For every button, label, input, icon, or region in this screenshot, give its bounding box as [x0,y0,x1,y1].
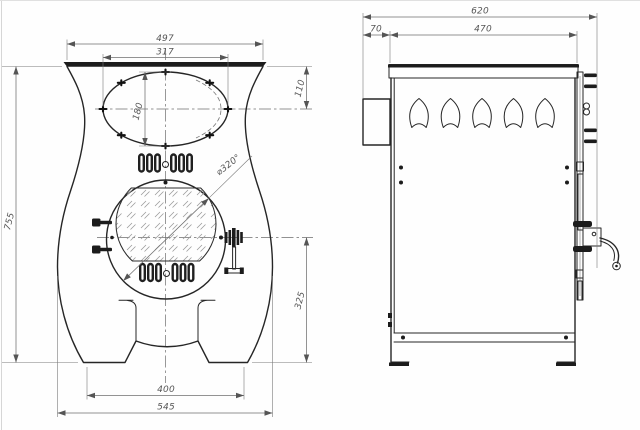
side-base [389,333,576,366]
dim-label-top-offset: 110 [294,79,308,99]
side-view: 620 70 470 [363,7,620,367]
front-pedestal [119,300,215,341]
dim-rear-ledge: 70 [363,25,390,36]
door-glass [116,188,216,261]
dim-label-lower-height: 325 [294,291,308,311]
front-top-plate [64,62,267,67]
scan-edge-top [0,0,640,1]
door-latch [219,228,244,274]
side-flue-box [363,99,390,145]
door-handle [600,238,620,270]
dim-label-feet-span: 400 [157,385,175,395]
door-top-bolt [164,181,168,185]
dim-label-body-depth: 470 [474,25,492,35]
dim-body-depth: 470 [390,25,577,64]
front-lower-vents [140,264,193,281]
dim-label-door-diameter: ⌀320° [215,153,243,178]
dim-label-port-height: 180 [132,102,146,122]
dim-lower-height: 325 [252,238,312,363]
dim-label-rear-ledge: 70 [370,25,382,35]
dim-overall-depth: 620 [363,7,597,269]
front-door [92,180,244,299]
side-wall-bolts [388,166,569,328]
dim-overall-height: 755 [2,67,78,363]
dim-label-top-width: 497 [156,34,174,44]
front-view: 497 317 755 110 [2,34,313,417]
drawing-canvas: 497 317 755 110 [0,0,640,430]
dim-label-port-width: 317 [156,48,174,58]
dim-label-max-width: 545 [157,403,175,413]
dim-label-overall-height: 755 [3,212,17,232]
stove-technical-drawing: 497 317 755 110 [0,0,640,430]
dim-label-overall-depth: 620 [471,7,489,17]
dim-top-offset: 110 [267,67,312,110]
door-hinges [92,219,114,254]
scan-edge-left [1,0,2,430]
side-egg-cutouts [410,99,555,128]
handle-bracket [583,228,601,246]
